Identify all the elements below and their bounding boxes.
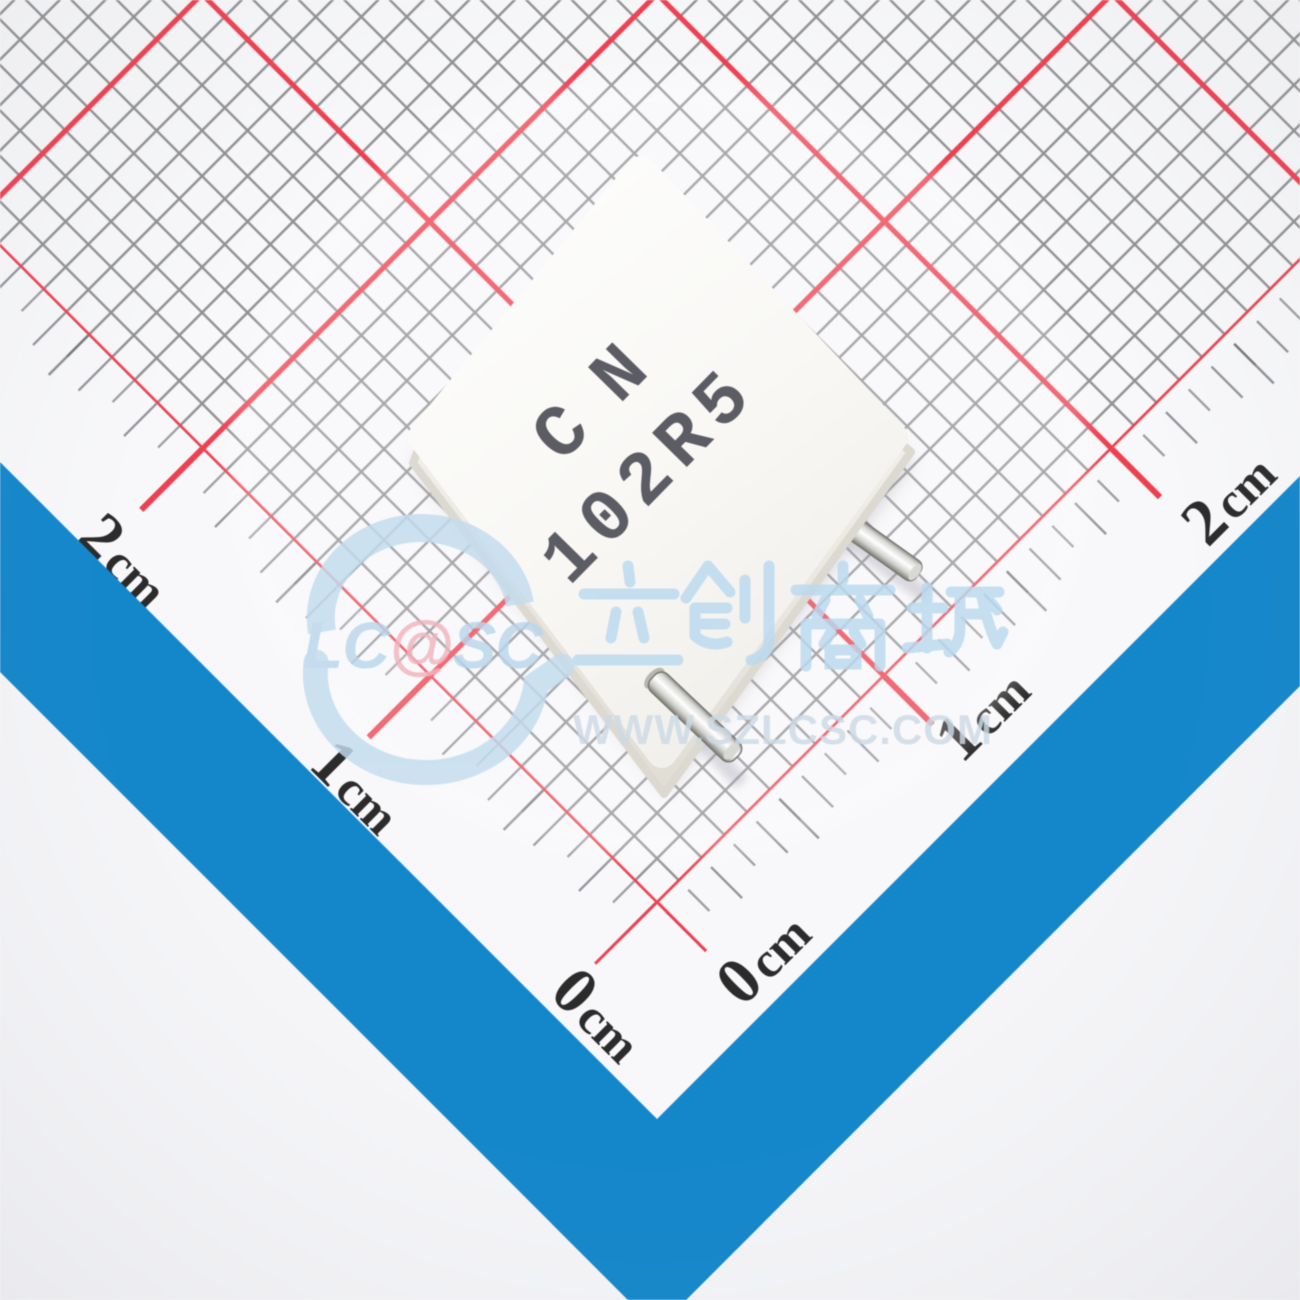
svg-text:LC@SC: LC@SC	[303, 608, 544, 682]
svg-text:WWW.SZLCSC.COM: WWW.SZLCSC.COM	[573, 706, 993, 753]
